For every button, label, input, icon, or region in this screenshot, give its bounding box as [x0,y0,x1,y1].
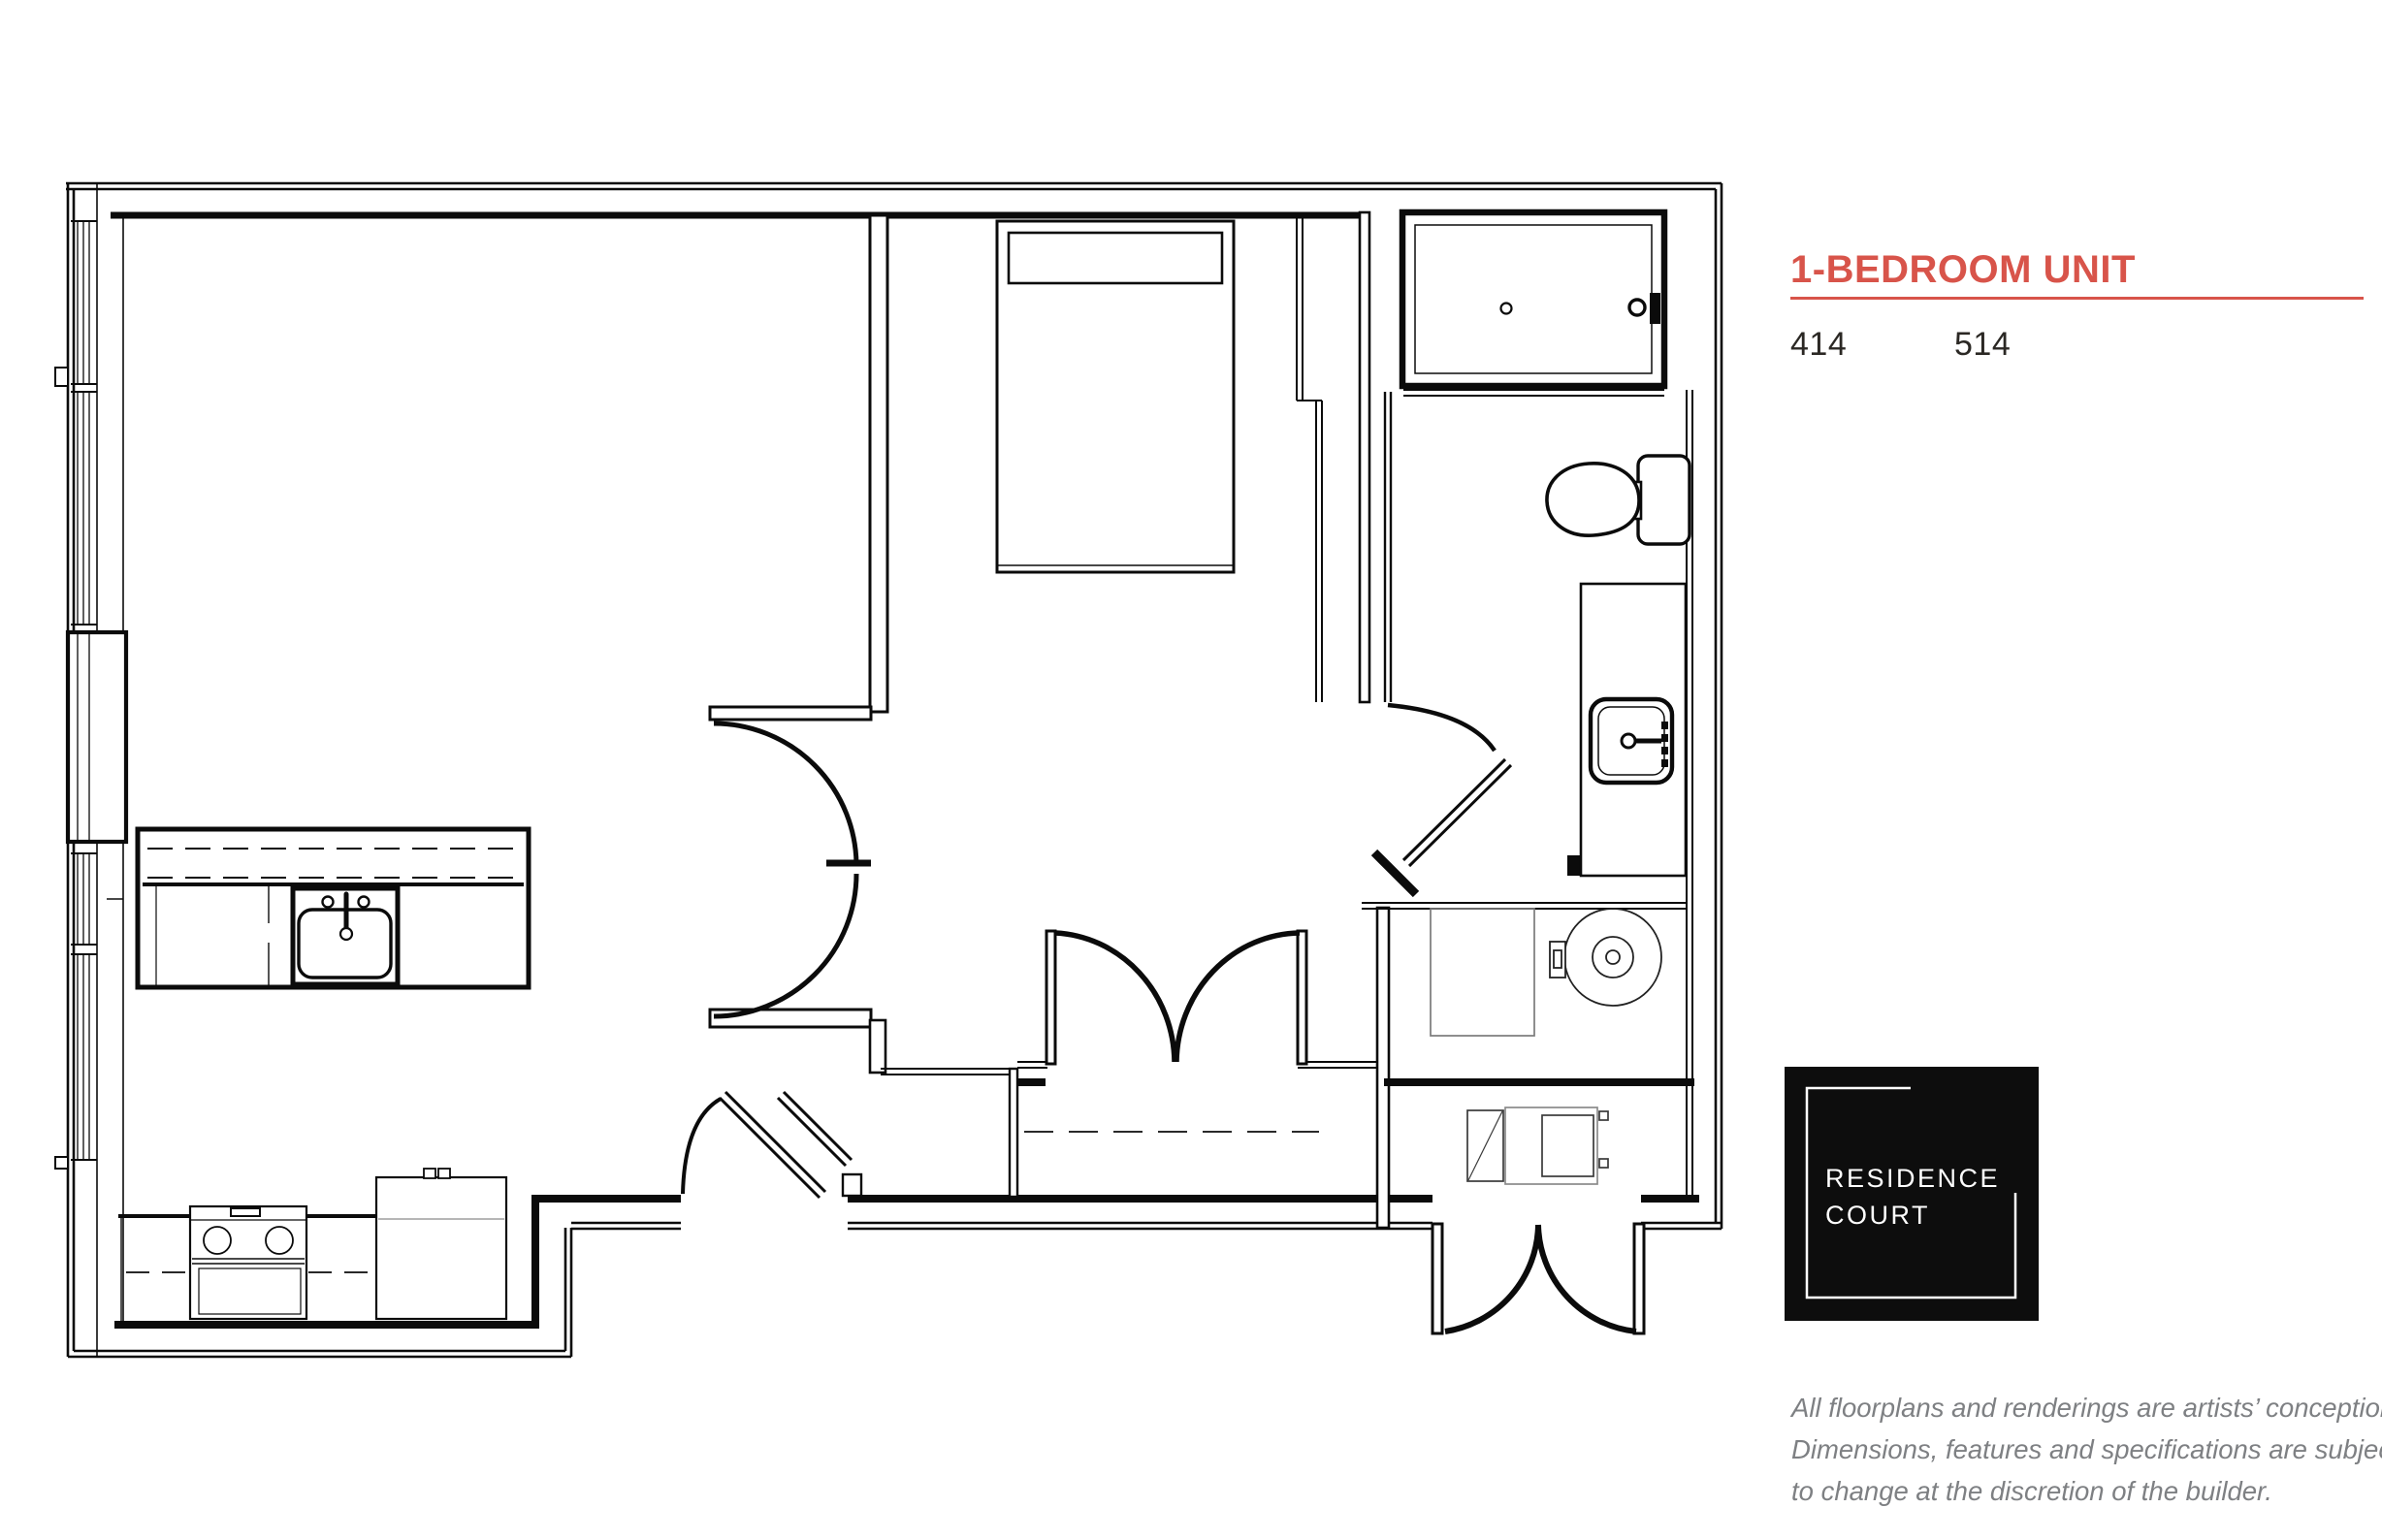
stove-handle [231,1208,260,1216]
disclaimer-text: All floorplans and renderings are artist… [1791,1387,2382,1512]
wall-closet-north [881,1069,1017,1075]
shower [1402,212,1664,386]
kitchen [118,829,529,1323]
kitchen-island [138,829,529,987]
wall-bath-west [1385,392,1391,702]
bedroom [997,221,1234,572]
window-frame-thick [68,632,126,842]
shower-curb [1403,390,1664,396]
sink-knob-icon [323,897,334,908]
residence-court-logo: RESIDENCE COURT [1785,1067,2039,1321]
page: 1-BEDROOM UNIT 414 514 RESIDENCE COURT A… [0,0,2382,1540]
toilet-bowl [1547,464,1639,535]
fridge-handle [438,1169,450,1178]
wall-plumbing-chase [1297,214,1322,702]
closet-jamb-stubs [1017,1062,1378,1068]
entry-bench [1505,1107,1608,1184]
bathroom-door [1388,705,1511,866]
logo-line1: RESIDENCE [1825,1164,2000,1194]
left-wall-windows [55,221,126,1169]
bed-pillow [1009,233,1222,283]
laundry [1431,909,1661,1036]
bathroom [1402,212,1690,876]
wall-bath-side [1360,212,1369,702]
disclaimer-line: All floorplans and renderings are artist… [1791,1387,2382,1428]
wall-stub-bedroom-door [710,707,871,720]
fridge-handle [424,1169,435,1178]
wall-pilaster-tick [55,368,68,386]
title-underline [1790,297,2364,300]
stove [190,1206,306,1319]
entry-shelf [1467,1110,1503,1181]
bedroom-door-swing [714,723,871,1016]
wall-laundry-south [1384,1078,1694,1086]
closet-double-doors [1046,931,1306,1064]
wall-laundry-north [1362,903,1687,909]
wall-pilaster-tick [55,1157,68,1169]
wall-angled-stub [1374,852,1416,894]
page-title: 1-BEDROOM UNIT [1790,248,2136,292]
entry-double-doors [1432,1224,1644,1333]
fridge [376,1169,506,1319]
sink-knob-icon [359,897,370,908]
washer [1550,909,1661,1006]
wall-hall-corner [870,1020,885,1073]
wall-hall-kitchen [710,1010,871,1027]
dryer [1431,909,1534,1036]
toilet [1547,456,1690,544]
sink-faucet-tip [340,928,352,940]
wall-living-bedroom [870,215,887,712]
unit-number-414: 414 [1790,326,1847,364]
entry [1467,1107,1608,1184]
wall-closet-laundry-divider [1377,908,1389,1228]
logo-line2: COURT [1825,1201,1930,1231]
bifold-door [683,1092,861,1198]
wall-closet-west [1010,1069,1017,1197]
wall-closet-west-stub [1017,1078,1046,1086]
disclaimer-line: to change at the discretion of the build… [1791,1470,2382,1512]
vanity [1581,584,1686,876]
shower-handle [1650,293,1660,324]
disclaimer-line: Dimensions, features and specifications … [1791,1428,2382,1470]
unit-number-514: 514 [1954,326,2011,364]
wall-vanity-corner [1567,855,1581,876]
logo-frame [1785,1067,2039,1321]
toilet-tank [1638,456,1690,544]
